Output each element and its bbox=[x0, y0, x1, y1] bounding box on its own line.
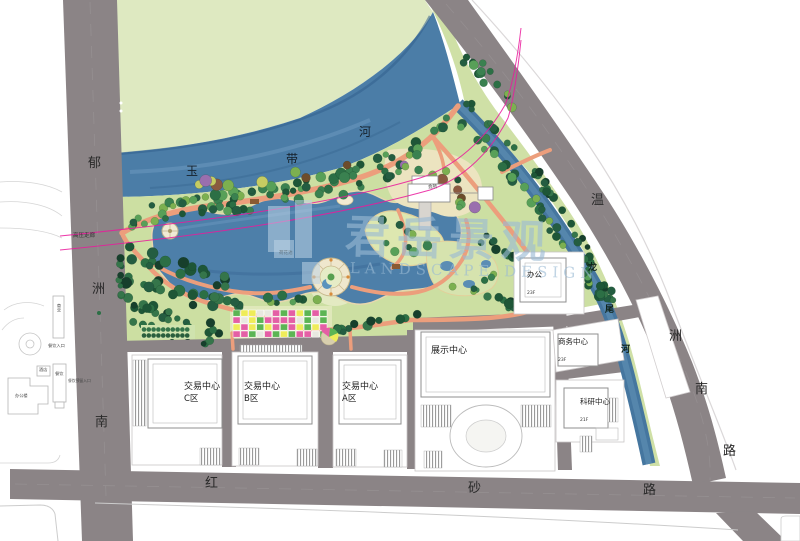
road-west-char-2: 洲 bbox=[92, 283, 105, 297]
west-office-building-label: 办公楼 bbox=[15, 394, 28, 398]
clubhouse-label: 会所 bbox=[428, 186, 437, 191]
west-district-sketch bbox=[0, 181, 66, 414]
road-east-char-4: 路 bbox=[723, 445, 736, 459]
trade-center-b-label: 交易中心B区 bbox=[244, 383, 280, 404]
river-north-char-2: 带 bbox=[286, 153, 298, 166]
west-commercial-label: 商业 bbox=[55, 304, 63, 313]
trade-center-c-label: 交易中心C区 bbox=[184, 383, 220, 404]
road-east-char-3: 南 bbox=[695, 383, 708, 397]
river-east-char-2: 尾 bbox=[605, 306, 614, 315]
road-south-char-2: 砂 bbox=[468, 482, 481, 496]
business-center-label: 商务中心 23F bbox=[558, 331, 588, 365]
river-north-char-1: 玉 bbox=[186, 165, 198, 178]
research-center-label: 科研中心 21F bbox=[580, 391, 610, 425]
road-south-char-3: 路 bbox=[643, 484, 656, 498]
road-west-char-3: 南 bbox=[95, 416, 108, 430]
road-east-char-1: 温 bbox=[591, 194, 604, 208]
river-east-char-1: 龙 bbox=[588, 264, 597, 273]
lotus-pond-label: 荷花池 bbox=[279, 252, 293, 257]
west-reserved-entrance-label: 餐饮预留入口 bbox=[68, 379, 91, 383]
road-east-char-2: 洲 bbox=[669, 330, 682, 344]
exhibition-center-label: 展示中心 bbox=[431, 347, 467, 356]
west-dining-label: 餐饮 bbox=[55, 372, 63, 376]
road-south-char-1: 红 bbox=[205, 477, 218, 491]
river-east-char-3: 河 bbox=[621, 346, 630, 355]
site-plan: 君岳景观 LANDSCAPE DESIGN 郁 洲 南 温 洲 南 路 红 砂 … bbox=[0, 0, 800, 541]
hv-corridor-label: 高压走廊 bbox=[73, 234, 95, 240]
west-hotel-label: 酒店 bbox=[39, 368, 47, 372]
road-west-char-1: 郁 bbox=[88, 157, 101, 171]
office-label: 办公 23F bbox=[527, 264, 542, 298]
trade-center-a-label: 交易中心A区 bbox=[342, 383, 378, 404]
west-dining-entrance-label: 餐饮入口 bbox=[48, 344, 65, 348]
river-north-char-3: 河 bbox=[359, 126, 371, 139]
